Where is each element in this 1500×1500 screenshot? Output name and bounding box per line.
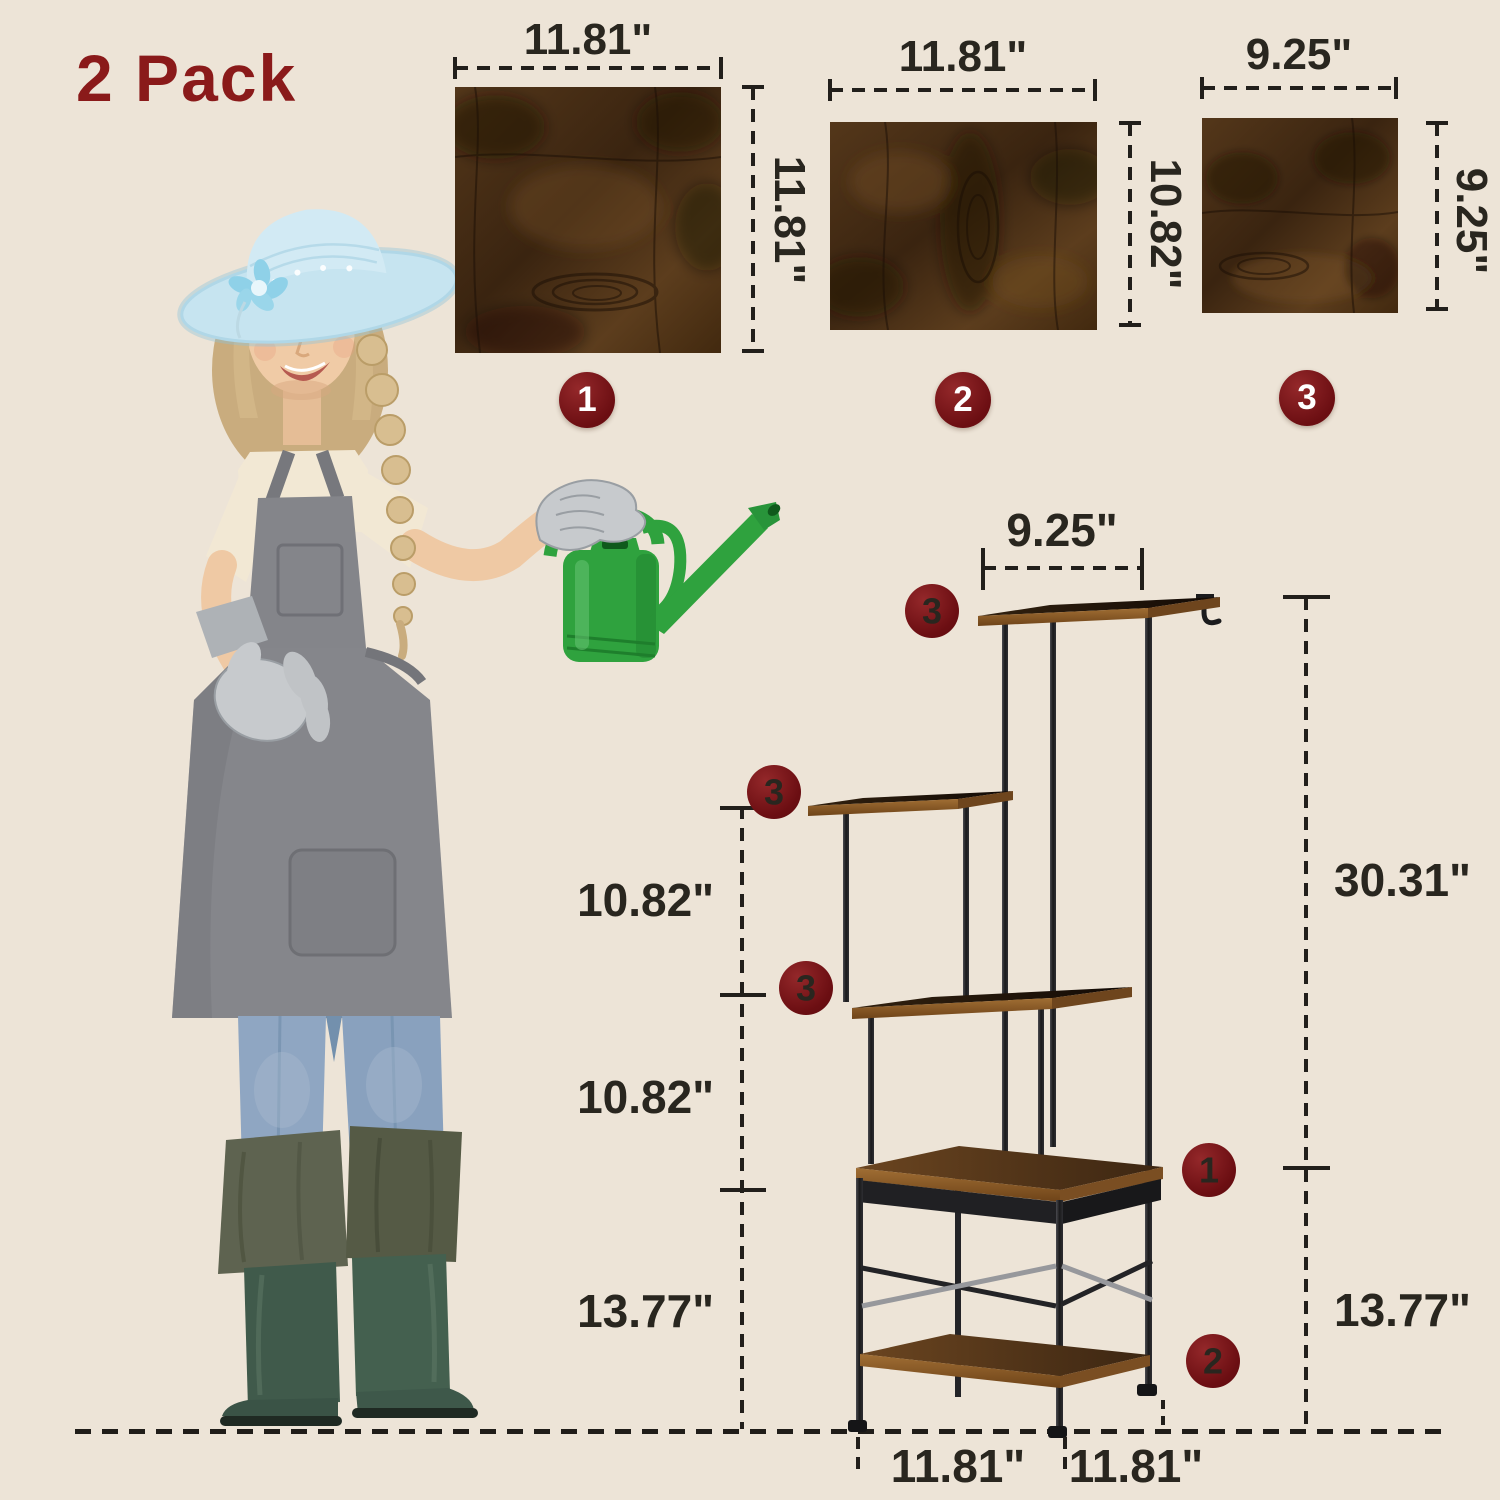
stand-right-label-2: 13.77" — [1334, 1284, 1471, 1336]
badge-base-shelf: 2 — [1203, 1341, 1223, 1382]
stand-right-label-1: 30.31" — [1334, 854, 1471, 906]
stand-left-label-2: 10.82" — [577, 1071, 714, 1123]
wood-panel-3 — [1202, 118, 1398, 313]
stand-left-label-3: 13.77" — [577, 1285, 714, 1337]
plant-stand-diagram: 9.25" 10.82" 10.82" 13.77" 30.31" 13.77"… — [540, 490, 1500, 1500]
pack-count-title: 2 Pack — [76, 40, 297, 116]
panel2-height-label: 10.82" — [1140, 159, 1190, 290]
stand-left-label-1: 10.82" — [577, 874, 714, 926]
panel2-height-line — [1128, 123, 1132, 327]
panel3-height-line — [1435, 123, 1439, 311]
badge-table-shelf: 1 — [1199, 1150, 1219, 1191]
panel3-width-label: 9.25" — [1246, 30, 1353, 80]
wood-panel-2 — [830, 122, 1097, 330]
stand-badges: 3 3 3 1 2 — [747, 584, 1240, 1388]
wood-panel-1 — [455, 87, 721, 353]
stand-structure — [808, 594, 1220, 1438]
rubber-boots — [220, 1254, 478, 1426]
badge-upper-shelf: 3 — [922, 591, 942, 632]
panel1-height-line — [751, 87, 755, 353]
boot-cuffs — [218, 1126, 462, 1274]
panel2-width-label: 11.81" — [899, 32, 1028, 82]
panel3-width-line — [1202, 86, 1398, 90]
apron-bib — [246, 496, 366, 650]
badge-lower-shelf: 3 — [796, 968, 816, 1009]
stand-bottom-label-2: 11.81" — [1069, 1440, 1203, 1492]
panel3-badge: 3 — [1279, 370, 1335, 426]
stand-bottom-label-1: 11.81" — [891, 1440, 1025, 1492]
badge-middle-shelf: 3 — [764, 772, 784, 813]
apron-pocket — [290, 850, 395, 955]
straw-hat — [168, 190, 464, 359]
stand-top-width-label: 9.25" — [1006, 504, 1117, 556]
panel2-badge: 2 — [935, 372, 991, 428]
panel1-height-label: 11.81" — [764, 156, 814, 285]
panel1-width-line — [455, 66, 721, 70]
panel2-width-line — [830, 88, 1097, 92]
panel1-width-label: 11.81" — [524, 15, 653, 65]
panel3-height-label: 9.25" — [1446, 168, 1496, 275]
product-infographic: 2 Pack — [0, 0, 1500, 1500]
panel1-badge: 1 — [559, 372, 615, 428]
